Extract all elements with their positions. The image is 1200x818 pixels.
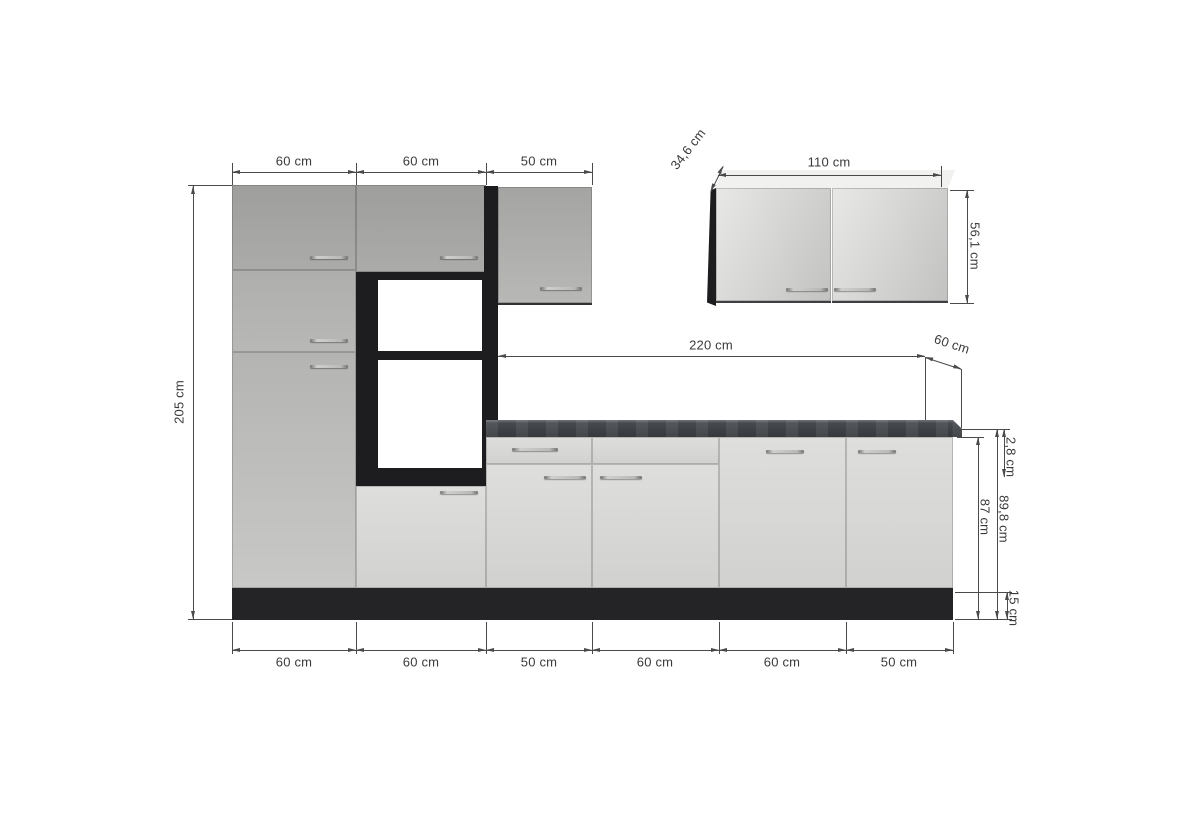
extension-line xyxy=(188,619,232,620)
handle xyxy=(858,450,896,453)
dim-label-bottom-2: 60 cm xyxy=(403,655,439,670)
extension-line xyxy=(957,437,984,438)
wall-cabinet-top-face xyxy=(709,170,956,188)
base-door-1 xyxy=(486,464,592,588)
extension-line xyxy=(356,163,357,185)
dimension-line xyxy=(498,356,925,357)
handle xyxy=(766,450,804,453)
extension-line xyxy=(955,592,1012,593)
handle xyxy=(540,287,582,290)
dim-label-bottom-4: 60 cm xyxy=(637,655,673,670)
handle xyxy=(310,256,348,259)
plinth xyxy=(232,588,953,620)
handle xyxy=(310,339,348,342)
extension-line xyxy=(188,185,232,186)
base-door-3 xyxy=(719,437,846,588)
handle xyxy=(834,288,876,291)
dimension-line xyxy=(356,650,486,651)
dim-label-wall-depth: 34,6 cm xyxy=(667,126,708,173)
dimension-line xyxy=(486,650,592,651)
extension-line xyxy=(486,163,487,185)
dim-label-base-height-worktop: 89,8 cm xyxy=(997,495,1012,543)
handle xyxy=(786,288,828,291)
extension-line xyxy=(953,622,954,654)
worktop xyxy=(486,420,953,437)
dimension-line xyxy=(592,650,719,651)
extension-line xyxy=(950,190,974,191)
extension-line xyxy=(925,358,926,420)
handle xyxy=(600,476,642,479)
oven-tower-side-panel xyxy=(484,186,498,424)
oven-opening-upper xyxy=(378,280,482,351)
dim-label-top-3: 50 cm xyxy=(521,154,557,169)
handle xyxy=(310,365,348,368)
dimension-line-depth xyxy=(925,357,961,370)
handle xyxy=(544,476,586,479)
dim-label-top-1: 60 cm xyxy=(276,154,312,169)
oven-opening-lower xyxy=(378,360,482,468)
dimension-line xyxy=(486,172,592,173)
wall-cabinet-left-door xyxy=(716,188,831,303)
dimension-line xyxy=(718,175,941,176)
tall-cabinet-lower-door xyxy=(232,352,356,588)
base-door-2 xyxy=(592,464,719,588)
dim-label-worktop-length: 220 cm xyxy=(689,338,733,353)
extension-line xyxy=(592,163,593,185)
dimension-line xyxy=(356,172,486,173)
extension-line xyxy=(961,369,962,428)
dim-label-worktop-thickness: 2,8 cm xyxy=(1004,437,1019,477)
dim-label-worktop-depth: 60 cm xyxy=(932,331,971,357)
dimension-line xyxy=(719,650,846,651)
base-top-panel-2 xyxy=(592,437,719,464)
handle xyxy=(440,256,478,259)
oven-tower-bottom-door xyxy=(356,486,486,588)
kitchen-dimension-diagram: 60 cm 60 cm 50 cm 205 cm 110 cm 34,6 cm … xyxy=(0,0,1200,818)
wall-cabinet-side-panel xyxy=(707,188,716,306)
handle xyxy=(440,491,478,494)
dimension-line xyxy=(193,186,194,619)
base-door-4 xyxy=(846,437,953,588)
dimension-line xyxy=(846,650,953,651)
dim-label-bottom-1: 60 cm xyxy=(276,655,312,670)
wall-cabinet-right-door xyxy=(832,188,948,303)
extension-line xyxy=(950,303,974,304)
dimension-line xyxy=(232,172,356,173)
dim-label-top-2: 60 cm xyxy=(403,154,439,169)
extension-line xyxy=(941,166,942,187)
dim-label-plinth-height: 15 cm xyxy=(1007,590,1022,626)
extension-line xyxy=(955,619,1012,620)
dimension-line xyxy=(232,650,356,651)
handle xyxy=(512,448,558,451)
extension-line xyxy=(232,163,233,185)
dim-label-wall-width: 110 cm xyxy=(808,155,851,170)
dim-label-wall-height: 56,1 cm xyxy=(968,222,983,270)
dim-label-bottom-5: 60 cm xyxy=(764,655,800,670)
dim-label-base-height: 87 cm xyxy=(978,499,993,535)
dim-label-bottom-6: 50 cm xyxy=(881,655,917,670)
dim-label-bottom-3: 50 cm xyxy=(521,655,557,670)
dim-label-total-height: 205 cm xyxy=(172,380,187,424)
